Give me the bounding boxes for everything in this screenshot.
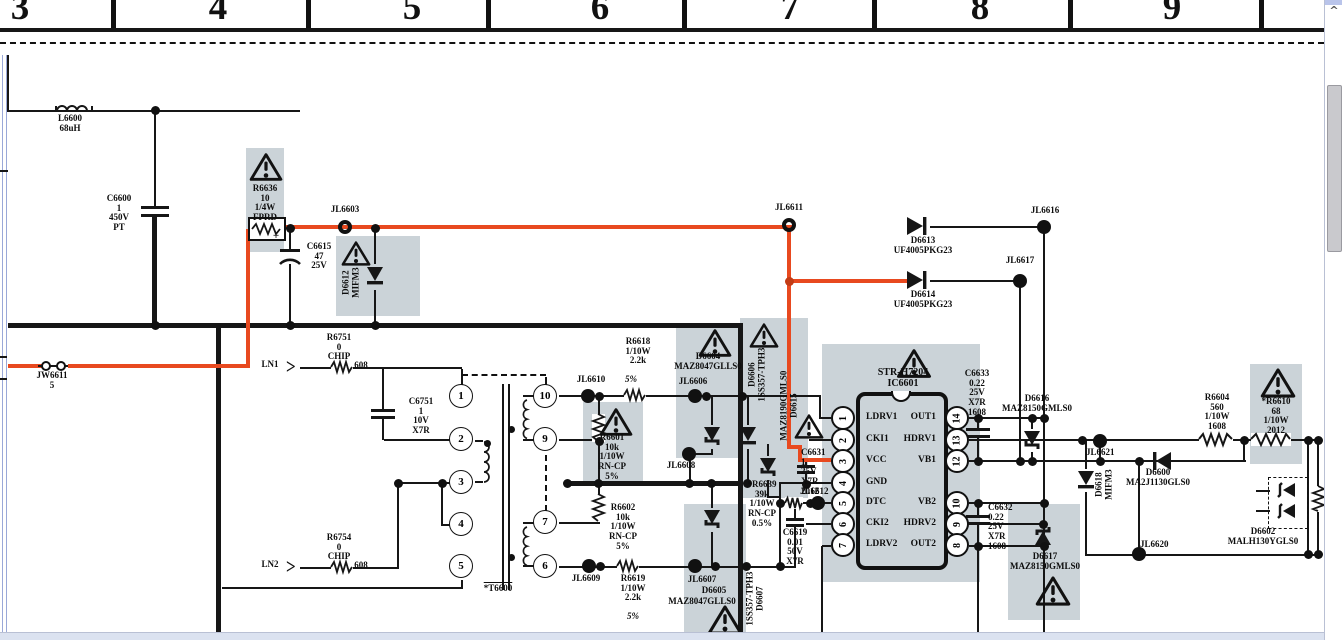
ruler-zone: 8 — [963, 0, 997, 29]
label-ln1: LN1 — [256, 360, 284, 370]
coil-secondary-top — [517, 399, 529, 439]
ic-pin-7: 7 — [831, 533, 855, 557]
label-c6633: C6633 0.22 25V X7R 1608 — [956, 369, 998, 417]
diode-d6606 — [739, 424, 757, 450]
xfmr-pin-4: 4 — [449, 512, 473, 536]
ic-pin-label: VCC — [866, 456, 887, 466]
connector-ln2-arrow: > — [286, 555, 296, 580]
label-d6612: D6612 MIFM3 — [341, 257, 360, 309]
dual-zener-d6602 — [1268, 477, 1308, 529]
ruler: 3 4 5 6 7 8 9 — [0, 0, 1324, 32]
ruler-tick — [306, 0, 311, 28]
label-r6754: R6754 0 CHIP — [318, 533, 360, 562]
ruler-zone: 7 — [773, 0, 807, 29]
label-jl6612: JL6612 — [800, 487, 844, 497]
label-jl6617: JL6617 — [997, 256, 1043, 266]
resistor-r6618 — [624, 389, 646, 401]
xfmr-pin-7: 7 — [533, 510, 557, 534]
warning-triangle-icon — [1035, 575, 1071, 607]
connector-ln1-arrow: > — [286, 355, 296, 380]
inductor-l6600 — [53, 98, 95, 114]
label-r6636: R6636 10 1/4W FPRD — [244, 184, 286, 223]
ruler-tick — [1068, 0, 1073, 28]
label-jl6603: JL6603 — [323, 205, 367, 215]
label-d6602: D6602 MALH130YGLS0 — [1218, 527, 1308, 546]
xfmr-pin-10: 10 — [533, 384, 557, 408]
label-d6600: D6600 MA2J1130GLS0 — [1122, 468, 1194, 487]
label-d6618: D6618 MIFM3 — [1094, 457, 1113, 513]
label-d6614: D6614 UF4005PKG23 — [884, 290, 962, 309]
ic-pin-label: HDRV1 — [898, 435, 936, 445]
label-r6751: R6751 0 CHIP — [318, 333, 360, 362]
xfmr-pin-1: 1 — [449, 384, 473, 408]
label-d6607: 1SS357-TPH3 D6607 — [745, 544, 764, 640]
ruler-rule — [0, 28, 1324, 32]
ic-pin-label: OUT2 — [898, 540, 936, 550]
ruler-tick — [1259, 0, 1264, 28]
ruler-zone: 3 — [3, 0, 37, 29]
scrollbar[interactable]: ^ — [1324, 0, 1342, 640]
sheet-fold-line — [0, 42, 1324, 44]
diode-d6614 — [904, 270, 932, 290]
label-c6600: C6600 1 450V PT — [98, 194, 140, 233]
ic-pin-label: VB2 — [898, 498, 936, 508]
label-d6613: D6613 UF4005PKG23 — [884, 236, 962, 255]
warning-triangle-icon — [1260, 367, 1296, 399]
node-jl6610 — [581, 389, 595, 403]
label-r6604: R6604 560 1/10W 1608 — [1194, 393, 1240, 432]
diode-d6612 — [366, 264, 384, 290]
zener-d6616 — [1023, 428, 1041, 454]
label-jw6611: JW6611 5 — [28, 371, 76, 390]
label-jl6611: JL6611 — [766, 203, 812, 213]
label-ln2: LN2 — [256, 560, 284, 570]
ruler-tick — [682, 0, 687, 28]
xfmr-pin-2: 2 — [449, 427, 473, 451]
xfmr-pin-5: 5 — [449, 554, 473, 578]
ic-pin-label: OUT1 — [898, 413, 936, 423]
xfmr-pin-9: 9 — [533, 427, 557, 451]
label-c6619: C6619 0.01 50V X7R — [776, 528, 814, 567]
ic-pin-1: 1 — [831, 406, 855, 430]
coil-primary — [482, 441, 494, 483]
viewer-bottom-edge — [0, 632, 1324, 640]
node-jl6609 — [582, 559, 596, 573]
zener-d6615 — [759, 455, 777, 481]
label-r6751-size: 608 — [350, 361, 372, 371]
zener-d6605 — [703, 507, 721, 533]
zener-d6604 — [703, 424, 721, 450]
xfmr-pin-6: 6 — [533, 554, 557, 578]
label-r6601: R6601 10k 1/10W RN-CP 5% — [588, 433, 636, 481]
schematic-sheet: 3 4 5 6 7 8 9 — [0, 0, 1342, 640]
coil-secondary-bottom — [517, 526, 529, 566]
label-r6610: *R6610 68 1/10W 2012 — [1250, 397, 1302, 436]
resistor-r6639 — [785, 497, 803, 509]
label-jl6610: JL6610 — [570, 375, 612, 385]
node-jl6606 — [688, 389, 702, 403]
label-d6606: D6606 1SS357-TPH3 — [747, 325, 766, 425]
label-d6616: D6616 MAZ8150GMLS0 — [996, 394, 1078, 413]
ic-pin-label: DTC — [866, 498, 886, 508]
label-jl6616: JL6616 — [1022, 206, 1068, 216]
label-t6600: *T6600 — [472, 584, 524, 594]
ruler-zone: 4 — [201, 0, 235, 29]
label-d6617: D6617 MAZ8150GMLS0 — [1004, 552, 1086, 571]
label-d6605-part: MAZ8047GLLS0 — [662, 597, 742, 607]
node-jl6621 — [1093, 434, 1107, 448]
jumper-jl6611 — [782, 218, 796, 232]
capacitor-c6615 — [279, 254, 301, 266]
label-r6602: R6602 10k 1/10W RN-CP 5% — [600, 503, 646, 551]
node-jl6608 — [682, 447, 696, 461]
label-d6615: MAZ8190GMLS0 D6615 — [779, 356, 798, 456]
node-jl6612 — [811, 496, 825, 510]
label-d6604: D6604 MAZ8047GLLS0 — [672, 352, 744, 371]
ic-pin-label: LDRV1 — [866, 413, 897, 423]
label-r6618: R6618 1/10W 2.2k — [614, 337, 662, 366]
ruler-zone: 5 — [395, 0, 429, 29]
ic-pin-label: GND — [866, 478, 887, 488]
xfmr-pin-3: 3 — [449, 470, 473, 494]
label-jl6609: JL6609 — [564, 574, 608, 584]
ic-pin-label: CKI2 — [866, 519, 889, 529]
node-jl6607 — [688, 559, 702, 573]
diode-d6613 — [904, 216, 932, 236]
resistor-r6619 — [617, 560, 639, 572]
ruler-tick — [486, 0, 491, 28]
label-jl6620: JL6620 — [1140, 540, 1186, 550]
label-r6618-tol: 5% — [620, 375, 642, 385]
ruler-zone: 9 — [1155, 0, 1189, 29]
ruler-tick — [872, 0, 877, 28]
ic-pin-label: HDRV2 — [898, 519, 936, 529]
ic-pin-label: CKI1 — [866, 435, 889, 445]
label-c6615: C6615 47 25V — [300, 242, 338, 271]
label-d6605: D6605 — [692, 586, 736, 596]
label-r6619: R6619 1/10W 2.2k — [610, 574, 656, 603]
resistor-r6604 — [1199, 433, 1233, 446]
label-r6639: *R6639 39k 1/10W RN-CP 0.5% — [740, 480, 784, 528]
ic-pin-8: 8 — [945, 533, 969, 557]
ic-pin-label: LDRV2 — [866, 540, 897, 550]
ruler-tick — [111, 0, 116, 28]
label-l6600: L6600 68uH — [48, 114, 92, 133]
ruler-zone: 6 — [583, 0, 617, 29]
ic-pin-label: VB1 — [898, 456, 936, 466]
label-jl6606: JL6606 — [670, 377, 716, 387]
scrollbar-thumb[interactable] — [1327, 85, 1342, 252]
warning-triangle-icon — [249, 152, 283, 182]
label-c6632: C6632 0.22 25V X7R 1608 — [988, 503, 1028, 551]
label-jl6607: JL6607 — [680, 575, 724, 585]
node-jl6616 — [1037, 220, 1051, 234]
jumper-jl6603 — [338, 220, 352, 234]
ic6601-title: STR-H7204 IC6601 — [855, 368, 951, 389]
label-c6615-plus: + — [270, 231, 282, 243]
scroll-up-button[interactable]: ^ — [1325, 4, 1342, 22]
node-jl6617 — [1013, 274, 1027, 288]
label-r6619-tol: 5% — [622, 612, 644, 622]
label-c6751: C6751 1 10V X7R — [400, 397, 442, 436]
diode-d6618 — [1077, 468, 1095, 494]
ic-pin-12: 12 — [945, 449, 969, 473]
label-jl6608: JL6608 — [658, 461, 704, 471]
label-r6754-size: 608 — [350, 561, 372, 571]
